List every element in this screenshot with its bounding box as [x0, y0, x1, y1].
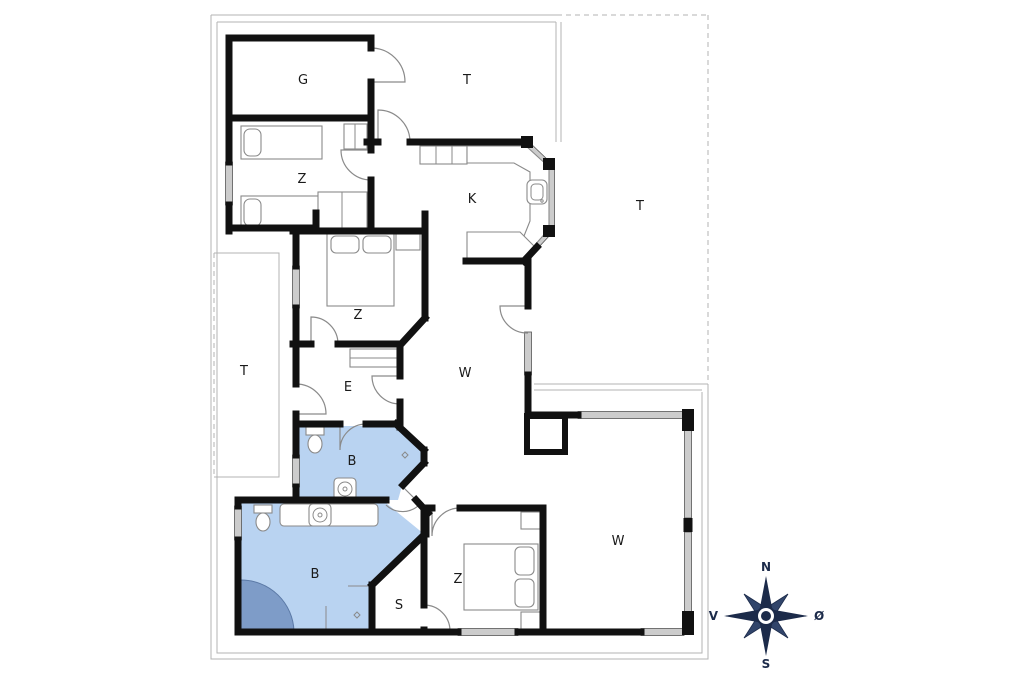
compass-south-label: S: [762, 657, 771, 671]
pillow: [363, 236, 391, 253]
window-icon: [641, 629, 684, 636]
room-label-bedroom-bottom: Z: [454, 572, 463, 587]
closet: [521, 612, 541, 629]
room-label-terrace-right: T: [635, 199, 644, 214]
door-arc-icon: [424, 605, 450, 630]
room-label-garage: G: [298, 73, 308, 88]
window-icon: [235, 506, 242, 540]
room-label-terrace-left: T: [239, 364, 248, 379]
window-icon: [578, 412, 684, 419]
pillow: [515, 547, 534, 575]
room-label-storage: S: [395, 598, 403, 613]
compass-east-label: Ø: [814, 609, 824, 623]
sink-icon: [309, 504, 331, 526]
door-arc-icon: [500, 306, 528, 333]
pillow: [244, 199, 261, 226]
room-label-living-ext: W: [612, 534, 625, 549]
room-label-entry-hall: E: [344, 380, 352, 395]
toilet-icon: [306, 427, 324, 435]
door-arc-icon: [371, 48, 405, 82]
compass-rose-icon: N S V Ø: [709, 560, 825, 671]
kitchen-cabinets: [420, 146, 467, 164]
window-icon: [685, 428, 692, 518]
compass-north-label: N: [761, 560, 771, 574]
pillow: [331, 236, 359, 253]
room-label-bathroom-main: B: [311, 567, 320, 582]
pillow: [244, 129, 261, 156]
room-label-bathroom-top: B: [348, 454, 357, 469]
pillow: [515, 579, 534, 607]
door-arc-icon: [311, 317, 338, 344]
room-label-living-room: W: [459, 366, 472, 381]
door-arc-icon: [341, 150, 371, 180]
floor-plan-svg: G T T T Z K Z E W B B S Z W N S V Ø: [0, 0, 1024, 682]
door-arc-icon: [296, 384, 326, 414]
window-icon: [525, 332, 532, 375]
closet: [521, 512, 541, 529]
door-arc-icon: [378, 110, 410, 142]
toilet-icon: [254, 505, 272, 513]
floor-plan-page: G T T T Z K Z E W B B S Z W N S V Ø: [0, 0, 1024, 682]
room-label-bedroom-top: Z: [298, 172, 307, 187]
compass-west-label: V: [709, 609, 719, 623]
window-icon: [226, 162, 233, 205]
room-label-bedroom-middle: Z: [354, 308, 363, 323]
window-icon: [293, 455, 300, 487]
window-icon: [685, 532, 692, 612]
door-arc-icon: [372, 376, 400, 404]
fireplace-icon: [527, 416, 565, 452]
room-label-kitchen: K: [468, 192, 477, 207]
room-label-terrace-top: T: [462, 73, 471, 88]
kitchen-counter: [467, 232, 534, 258]
door-arc-icon: [432, 508, 460, 536]
window-icon: [293, 266, 300, 308]
window-icon: [458, 629, 518, 636]
closet: [396, 234, 420, 250]
